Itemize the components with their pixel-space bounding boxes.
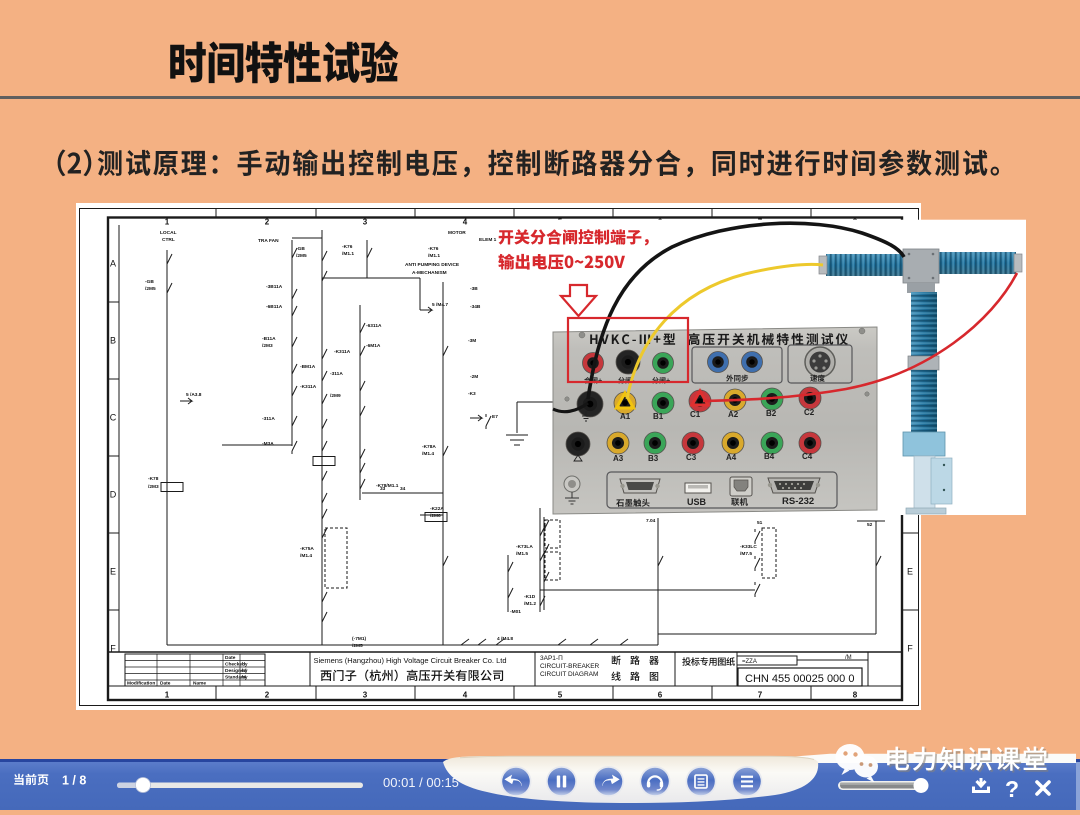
svg-text:1: 1 (165, 218, 170, 227)
svg-text:-K22A: -K22A (430, 506, 444, 512)
svg-text:=ZZA: =ZZA (742, 659, 757, 665)
svg-text:E7: E7 (492, 414, 498, 420)
svg-text:/M1.5: /M1.5 (516, 551, 528, 557)
svg-text:-311A: -311A (330, 371, 343, 377)
svg-text:-K73LA: -K73LA (516, 544, 533, 550)
svg-text:-6B11A: -6B11A (266, 304, 283, 310)
svg-text:by: by (242, 668, 248, 674)
svg-text:/2M5: /2M5 (145, 286, 156, 292)
svg-text:MOTOR: MOTOR (448, 230, 466, 236)
svg-text:by: by (242, 675, 248, 681)
svg-text:(-7M1): (-7M1) (352, 636, 367, 642)
svg-text:-K76: -K76 (342, 244, 353, 250)
svg-text:CIRCUIT-BREAKER: CIRCUIT-BREAKER (540, 663, 600, 670)
svg-text:A: A (110, 259, 116, 269)
svg-text:5: 5 (558, 691, 563, 700)
svg-text:-6M1A: -6M1A (366, 343, 381, 349)
svg-text:ANTI PUMPING DEVICE: ANTI PUMPING DEVICE (405, 262, 460, 268)
svg-text:/M1.1: /M1.1 (342, 251, 354, 257)
svg-text:52: 52 (867, 522, 873, 528)
svg-text:-K76: -K76 (428, 246, 439, 252)
svg-text:-B11A: -B11A (262, 336, 276, 342)
svg-text:-M3A: -M3A (262, 441, 274, 447)
svg-text:Siemens (Hangzhou) High Voltag: Siemens (Hangzhou) High Voltage Circuit … (313, 656, 506, 665)
svg-text:C4: C4 (802, 452, 813, 461)
svg-text:8: 8 (853, 691, 858, 700)
svg-text:6: 6 (658, 691, 663, 700)
svg-text:CIRCUIT DIAGRAM: CIRCUIT DIAGRAM (540, 671, 598, 678)
svg-text:3AP1-Π: 3AP1-Π (540, 655, 563, 662)
svg-text:CTRL: CTRL (162, 237, 175, 243)
svg-text:2: 2 (265, 691, 270, 700)
svg-text:Modification: Modification (127, 681, 155, 687)
svg-text:-K311A: -K311A (300, 384, 317, 390)
svg-text:-3B11A: -3B11A (266, 284, 283, 290)
svg-text:/2M3: /2M3 (262, 343, 273, 349)
svg-text:33: 33 (380, 486, 386, 492)
svg-text:-3B: -3B (470, 286, 478, 292)
svg-text:1 / 8: 1 / 8 (62, 774, 86, 788)
svg-text:B4: B4 (764, 452, 775, 461)
svg-text:2: 2 (265, 218, 270, 227)
svg-text:C1: C1 (690, 410, 701, 419)
svg-text:-2M: -2M (470, 374, 478, 380)
svg-text:5 /A3.8: 5 /A3.8 (186, 392, 202, 398)
svg-text:3: 3 (363, 691, 368, 700)
svg-text:1: 1 (165, 691, 170, 700)
svg-text:7.04: 7.04 (646, 518, 656, 524)
svg-text:C2: C2 (804, 408, 815, 417)
svg-text:-K311A: -K311A (334, 349, 351, 355)
svg-text:RS-232: RS-232 (782, 496, 814, 507)
svg-text:51: 51 (757, 520, 763, 526)
svg-text:/2M3: /2M3 (148, 484, 159, 490)
svg-text:-K78A: -K78A (422, 444, 436, 450)
svg-text:A3: A3 (613, 454, 624, 463)
svg-text:-BM1A: -BM1A (300, 364, 316, 370)
svg-text:4 /M4.8: 4 /M4.8 (497, 636, 513, 642)
svg-text:Date: Date (160, 681, 171, 687)
svg-text:3: 3 (363, 218, 368, 227)
svg-text:B1: B1 (653, 412, 664, 421)
svg-text:-K78: -K78 (148, 476, 159, 482)
svg-text:/2M6: /2M6 (430, 513, 441, 519)
svg-text:7: 7 (758, 691, 763, 700)
svg-text:D: D (110, 490, 117, 500)
svg-text:Date: Date (225, 655, 236, 661)
svg-text:A4: A4 (726, 453, 737, 462)
svg-text:Name: Name (193, 681, 206, 687)
svg-text:-GB: -GB (296, 246, 305, 252)
svg-text:C3: C3 (686, 453, 697, 462)
svg-text:-M01: -M01 (510, 609, 521, 615)
svg-text:/M1.4: /M1.4 (300, 553, 312, 559)
svg-text:-K3: -K3 (468, 391, 476, 397)
svg-text:-311A: -311A (262, 416, 275, 422)
svg-text:E: E (907, 567, 913, 577)
svg-text:C: C (110, 413, 117, 423)
svg-text:CHN 455 00025 000 0: CHN 455 00025 000 0 (745, 673, 854, 685)
svg-text:ELEM 1: ELEM 1 (479, 237, 497, 243)
svg-text:-34B: -34B (470, 304, 481, 310)
svg-text:by: by (242, 662, 248, 668)
svg-text:-K33LC: -K33LC (740, 544, 757, 550)
svg-text:F: F (907, 644, 913, 654)
svg-text:00:01 / 00:15: 00:01 / 00:15 (383, 775, 459, 790)
svg-text:5 /M4.7: 5 /M4.7 (432, 302, 448, 308)
svg-text:-GB: -GB (145, 279, 154, 285)
svg-text:34: 34 (400, 486, 406, 492)
svg-text:A1: A1 (620, 412, 631, 421)
svg-text:E: E (110, 567, 116, 577)
svg-text:/M1.4: /M1.4 (422, 451, 434, 457)
svg-text:A2: A2 (728, 410, 739, 419)
svg-text:B3: B3 (648, 454, 659, 463)
svg-text:/M1.2: /M1.2 (524, 601, 536, 607)
svg-text:/M: /M (845, 655, 852, 661)
svg-text:-6311A: -6311A (366, 323, 382, 329)
svg-text:?: ? (1005, 776, 1019, 802)
svg-text:/2M5: /2M5 (352, 643, 363, 649)
svg-text:/2M9: /2M9 (330, 393, 341, 399)
svg-text:/2M5: /2M5 (296, 253, 307, 259)
svg-text:4: 4 (463, 691, 468, 700)
svg-text:-K1D: -K1D (524, 594, 536, 600)
svg-text:B2: B2 (766, 409, 777, 418)
svg-text:LOCAL: LOCAL (160, 230, 177, 236)
svg-text:B: B (110, 336, 116, 346)
svg-text:USB: USB (687, 497, 707, 507)
svg-text:-K75A: -K75A (300, 546, 314, 552)
svg-text:/M7.5: /M7.5 (740, 551, 752, 557)
svg-text:/M1.1: /M1.1 (428, 253, 440, 259)
svg-text:A-MECHANISM: A-MECHANISM (412, 270, 447, 276)
svg-text:-3M: -3M (468, 338, 476, 344)
svg-text:TRA FAN: TRA FAN (258, 238, 279, 244)
svg-text:4: 4 (463, 218, 468, 227)
